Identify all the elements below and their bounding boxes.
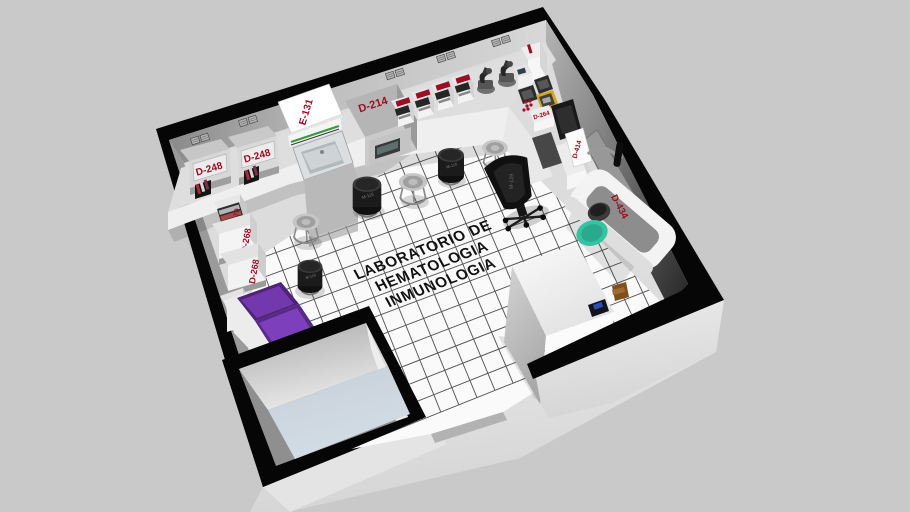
svg-text:M-129: M-129 bbox=[509, 174, 516, 189]
